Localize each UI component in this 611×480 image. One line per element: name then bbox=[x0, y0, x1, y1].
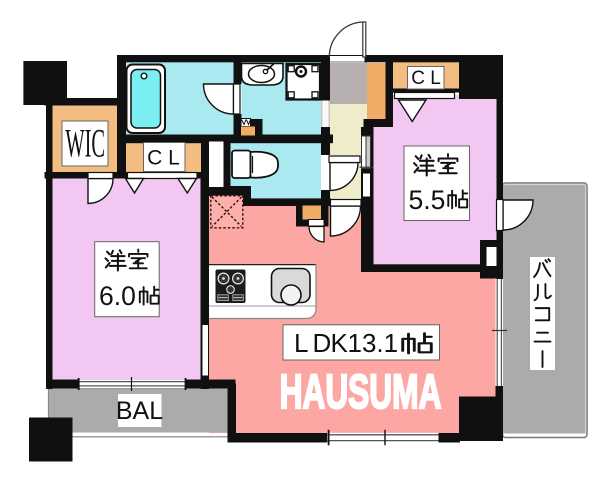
svg-text:13.1: 13.1 bbox=[348, 328, 399, 358]
svg-text:HAUSUMA: HAUSUMA bbox=[280, 364, 442, 418]
svg-text:L: L bbox=[294, 328, 308, 358]
svg-text:6.0: 6.0 bbox=[99, 281, 136, 311]
svg-text:D: D bbox=[313, 328, 332, 358]
svg-text:WIC: WIC bbox=[65, 121, 105, 165]
svg-text:C L: C L bbox=[411, 68, 441, 89]
svg-text:C L: C L bbox=[147, 147, 180, 170]
svg-text:5.5: 5.5 bbox=[409, 185, 446, 215]
svg-text:BAL: BAL bbox=[116, 397, 163, 425]
svg-text:K: K bbox=[331, 328, 349, 358]
